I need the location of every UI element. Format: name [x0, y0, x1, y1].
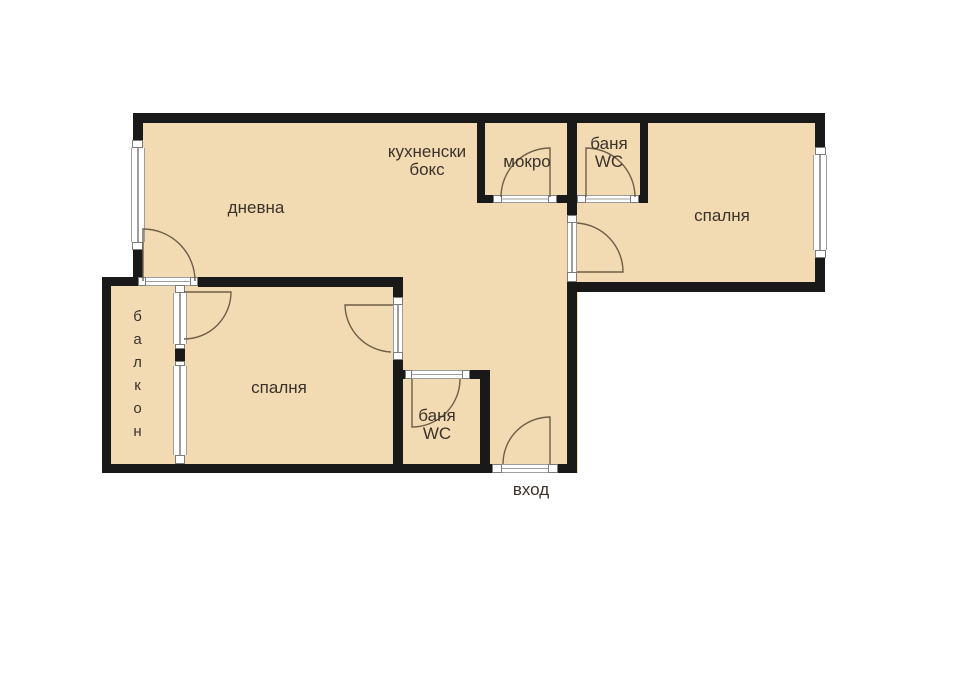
door-opening-bedroom-left — [393, 305, 403, 352]
wall-top — [133, 113, 825, 123]
room-label-wet-room: мокро — [503, 153, 551, 171]
wall-bathroom-top-right — [640, 123, 648, 203]
floor-plan: дневна кухненски бокс мокро баня WC спал… — [0, 0, 960, 679]
window-jamb — [175, 285, 185, 293]
wall-center-vertical-upper — [567, 113, 577, 215]
door-jamb — [138, 277, 146, 286]
window-bedroom-right — [813, 155, 827, 250]
door-jamb — [548, 195, 557, 203]
wall-bedroom-left-right-upper — [393, 287, 403, 297]
door-opening-wetroom — [502, 195, 548, 203]
door-jamb — [405, 370, 412, 379]
room-label-kitchen-line2: бокс — [388, 161, 466, 179]
door-jamb — [567, 272, 577, 282]
room-label-bathroom-bottom-line1: баня — [418, 407, 455, 425]
wall-bottom-1 — [102, 464, 492, 473]
door-jamb — [567, 215, 577, 223]
wall-bottom-2 — [558, 464, 577, 473]
balcony-glazing-upper — [173, 293, 187, 344]
room-label-bedroom-right: спалня — [694, 207, 750, 225]
wall-wetroom-left — [477, 123, 485, 203]
room-label-kitchen: кухненски бокс — [388, 143, 466, 179]
window-jamb — [175, 455, 185, 464]
wall-lower-left — [102, 286, 111, 473]
wall-bathroom-bottom-right — [480, 379, 490, 464]
room-label-bathroom-bottom-line2: WC — [418, 425, 455, 443]
door-jamb — [577, 195, 586, 203]
door-opening-entrance — [502, 464, 548, 473]
wall-center-vertical-lower — [567, 282, 577, 473]
room-label-living: дневна — [228, 199, 285, 217]
window-jamb — [132, 242, 143, 250]
window-jamb — [815, 250, 826, 258]
door-opening-bathroom-bottom — [412, 370, 462, 379]
room-label-bathroom-top: баня WC — [590, 135, 627, 171]
wall-lower-top-1 — [102, 277, 138, 286]
door-jamb — [630, 195, 639, 203]
room-label-bathroom-bottom: баня WC — [418, 407, 455, 443]
window-living-left — [131, 148, 145, 242]
balcony-divider-pier — [175, 349, 185, 361]
wall-lower-top-2 — [198, 277, 403, 287]
entrance-label: вход — [513, 481, 549, 499]
door-jamb — [393, 352, 403, 360]
door-jamb — [462, 370, 470, 379]
door-jamb — [548, 464, 558, 473]
door-jamb — [190, 277, 198, 286]
wall-bathroom-bottom-top-2 — [470, 370, 490, 379]
wall-kitchen-row-bottom-1 — [477, 195, 493, 203]
balcony-glazing-lower — [173, 366, 187, 455]
room-label-bedroom-left: спалня — [251, 379, 307, 397]
wall-bedroom-right-bottom — [567, 282, 815, 292]
room-label-kitchen-line1: кухненски — [388, 143, 466, 161]
window-jamb — [815, 147, 826, 155]
window-jamb — [132, 140, 143, 148]
wall-kitchen-row-bottom-2 — [557, 195, 567, 203]
room-label-bathroom-top-line2: WC — [590, 153, 627, 171]
door-jamb — [493, 195, 502, 203]
wall-bedroom-left-right-lower — [393, 360, 403, 473]
door-opening-bedroom-right — [567, 223, 577, 272]
room-label-bathroom-top-line1: баня — [590, 135, 627, 153]
door-jamb — [393, 297, 403, 305]
door-jamb — [492, 464, 502, 473]
room-label-balcony: балкон — [128, 308, 146, 446]
door-opening-bathroom-top — [586, 195, 630, 203]
